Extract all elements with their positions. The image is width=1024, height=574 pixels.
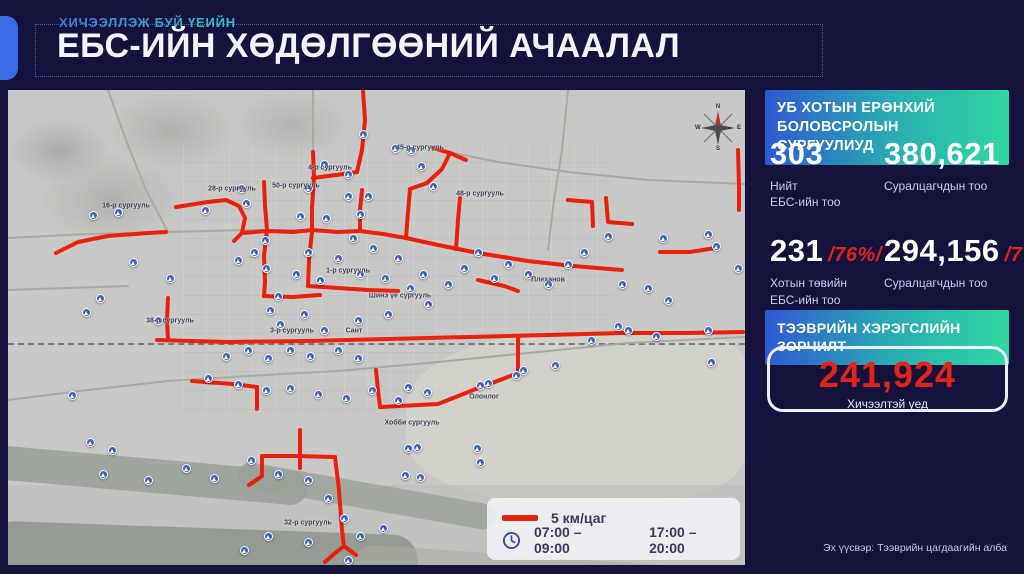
dashboard: ХИЧЭЭЛЛЭЖ БУЙ ҮЕИЙН ЕБС-ИЙН ХӨДӨЛГӨӨНИЙ …: [0, 0, 1024, 574]
map-label: Олонлог: [469, 394, 499, 401]
traffic-count-value: 241,924: [770, 354, 1005, 396]
stat-central-schools: 231 /76%/ Хотын төвийн ЕБС-ийн тоо: [770, 233, 876, 307]
stat-label: Хотын төвийн ЕБС-ийн тоо: [770, 275, 876, 307]
map-labels-layer: 16-р сургууль28-р сургууль50-р сургууль4…: [8, 90, 745, 565]
map-label: 50-р сургууль: [272, 183, 320, 190]
stat-number: 303: [770, 136, 823, 172]
stat-value: 380,621: [884, 136, 1024, 172]
map-label: 38-р сургууль: [146, 318, 194, 325]
compass-n-label: N: [716, 104, 720, 110]
stats-panel: УБ ХОТЫН ЕРӨНХИЙ БОЛОВСРОЛЫН СУРГУУЛИУД …: [765, 90, 1009, 565]
compass-rose: N S E W: [696, 106, 740, 150]
stat-total-schools: 303 Нийт ЕБС-ийн тоо: [770, 136, 876, 210]
stat-number: 294,156: [884, 233, 1000, 269]
traffic-map: 16-р сургууль28-р сургууль50-р сургууль4…: [8, 90, 745, 565]
stat-label-line: ЕБС-ийн тоо: [770, 194, 876, 210]
map-label: 48-р сургууль: [456, 191, 504, 198]
left-accent-pill: [0, 16, 18, 80]
stat-label-line: Суралцагчдын тоо: [884, 275, 1024, 291]
compass-w-label: W: [695, 125, 701, 131]
map-label: 3-р сургууль: [270, 328, 314, 335]
stat-percent: /77%/: [1005, 244, 1024, 267]
map-label: 32-р сургууль: [284, 520, 332, 527]
legend-time-row: 07:00 – 09:00 17:00 – 20:00: [502, 529, 725, 551]
map-label: Сант: [346, 328, 363, 335]
compass-star: [696, 106, 740, 150]
stat-percent: /76%/: [828, 244, 882, 267]
map-label: Плеханов: [531, 277, 565, 284]
schools-stats-grid: 303 Нийт ЕБС-ийн тоо 380,621 Суралцагчды…: [770, 136, 1009, 308]
stat-label-line: Хотын төвийн: [770, 275, 876, 291]
map-label: 4-р сургууль: [308, 165, 352, 172]
time-morning: 07:00 – 09:00: [534, 524, 610, 556]
stat-label: Суралцагчдын тоо: [884, 275, 1024, 291]
compass-s-label: S: [716, 146, 720, 152]
page-title: ЕБС-ИЙН ХӨДӨЛГӨӨНИЙ АЧААЛАЛ: [57, 27, 680, 66]
stat-label-line: ЕБС-ийн тоо: [770, 292, 876, 308]
stat-total-students: 380,621 Суралцагчдын тоо: [884, 136, 1024, 210]
traffic-count-label: Хичээлтэй үед: [770, 397, 1005, 411]
compass-e-label: E: [737, 125, 741, 131]
map-label: 45-р сургууль: [396, 145, 444, 152]
stat-label-line: Нийт: [770, 178, 876, 194]
map-label: Шинэ үе сургууль: [369, 293, 431, 300]
clock-icon: [502, 531, 521, 550]
stat-value: 303: [770, 136, 876, 172]
map-label: 16-р сургууль: [102, 203, 150, 210]
stat-label: Суралцагчдын тоо: [884, 178, 1024, 194]
stat-number: 231: [770, 233, 823, 269]
stat-value: 231 /76%/: [770, 233, 876, 269]
stat-label: Нийт ЕБС-ийн тоо: [770, 178, 876, 210]
stat-value: 294,156 /77%/: [884, 233, 1024, 269]
map-label: 28-р сургууль: [208, 186, 256, 193]
stat-number: 380,621: [884, 136, 1000, 172]
time-evening: 17:00 – 20:00: [649, 524, 725, 556]
map-label: 1-р сургууль: [326, 268, 370, 275]
map-label: Хобби сургууль: [384, 420, 439, 427]
stat-label-line: Суралцагчдын тоо: [884, 178, 1024, 194]
traffic-count-box: 241,924 Хичээлтэй үед: [767, 346, 1008, 412]
source-note: Эх үүсвэр: Тээврийн цагдаагийн алба: [823, 542, 1007, 554]
speed-line-swatch: [502, 515, 538, 521]
map-legend: 5 км/цаг 07:00 – 09:00 17:00 – 20:00: [487, 498, 740, 560]
stat-central-students: 294,156 /77%/ Суралцагчдын тоо: [884, 233, 1024, 307]
